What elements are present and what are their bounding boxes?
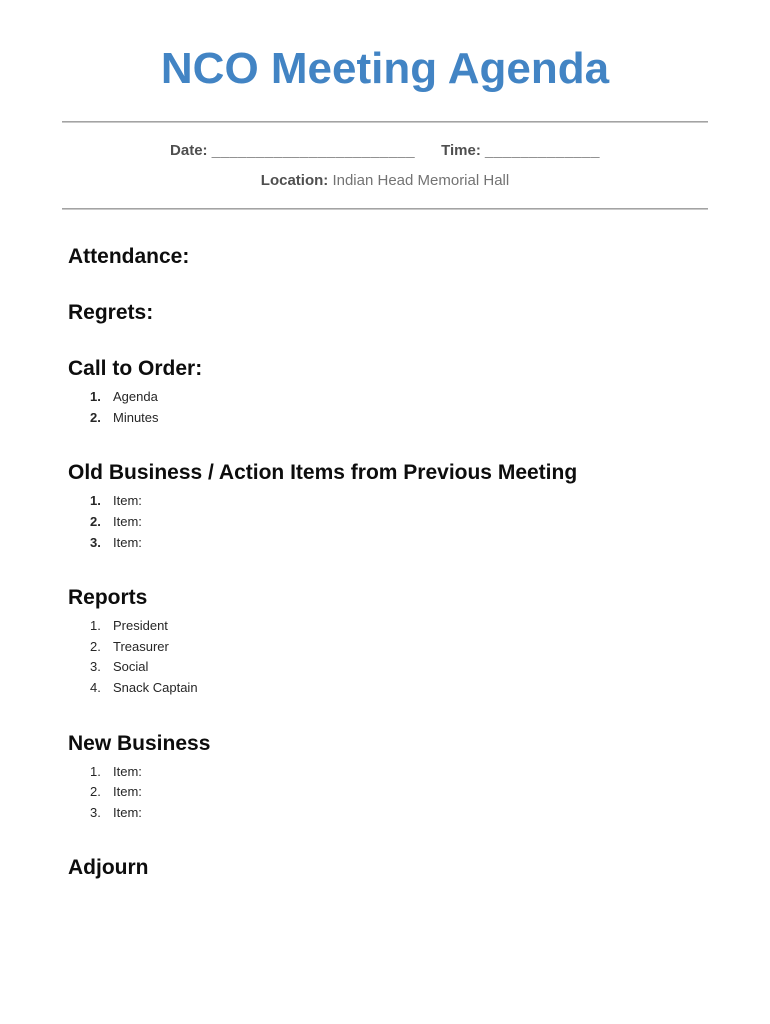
list-item-text: Item: — [113, 762, 142, 783]
section-heading: Attendance: — [68, 246, 702, 268]
section-heading: Reports — [68, 587, 702, 609]
list-item-number: 1. — [90, 387, 113, 408]
time-label: Time: — [441, 142, 481, 159]
list-item-text: President — [113, 616, 168, 637]
section-heading: New Business — [68, 733, 702, 755]
location-row: Location: Indian Head Memorial Hall — [0, 166, 770, 196]
time-field: Time: _____________ — [441, 136, 600, 166]
date-label: Date: — [170, 142, 208, 159]
document-title: NCO Meeting Agenda — [0, 44, 770, 93]
list-item-text: Agenda — [113, 387, 158, 408]
section-heading: Call to Order: — [68, 358, 702, 380]
list-item-text: Social — [113, 657, 148, 678]
list-item: 2.Item: — [90, 512, 702, 533]
list-item-text: Item: — [113, 512, 142, 533]
meeting-meta: Date: _______________________ Time: ____… — [0, 123, 770, 208]
list-item-text: Minutes — [113, 408, 159, 429]
list-item-text: Snack Captain — [113, 678, 198, 699]
document-page: NCO Meeting Agenda Date: _______________… — [0, 44, 770, 1024]
list-item: 2.Item: — [90, 782, 702, 803]
section-list: 1.Item:2.Item:3.Item: — [68, 491, 702, 553]
agenda-section: Old Business / Action Items from Previou… — [68, 462, 702, 553]
location-label: Location: — [261, 172, 329, 189]
list-item: 3.Item: — [90, 533, 702, 554]
list-item-number: 4. — [90, 678, 113, 699]
section-heading: Old Business / Action Items from Previou… — [68, 462, 702, 484]
list-item-number: 3. — [90, 803, 113, 824]
list-item: 3.Social — [90, 657, 702, 678]
list-item-number: 1. — [90, 616, 113, 637]
list-item: 4.Snack Captain — [90, 678, 702, 699]
location-value: Indian Head Memorial Hall — [332, 172, 509, 189]
date-field: Date: _______________________ — [170, 136, 415, 166]
agenda-section: Regrets: — [68, 302, 702, 324]
list-item: 1.Item: — [90, 491, 702, 512]
list-item: 3.Item: — [90, 803, 702, 824]
sections: Attendance:Regrets:Call to Order:1.Agend… — [0, 210, 770, 879]
list-item-text: Item: — [113, 533, 142, 554]
list-item-number: 3. — [90, 533, 113, 554]
list-item-text: Item: — [113, 491, 142, 512]
list-item-number: 2. — [90, 408, 113, 429]
agenda-section: Call to Order:1.Agenda2.Minutes — [68, 358, 702, 428]
agenda-section: Adjourn — [68, 857, 702, 879]
section-list: 1.Item:2.Item:3.Item: — [68, 762, 702, 824]
list-item-text: Item: — [113, 803, 142, 824]
list-item: 2.Treasurer — [90, 637, 702, 658]
list-item-number: 2. — [90, 512, 113, 533]
date-blank: _______________________ — [212, 142, 415, 159]
list-item: 1.Agenda — [90, 387, 702, 408]
section-list: 1.President2.Treasurer3.Social4.Snack Ca… — [68, 616, 702, 698]
list-item-number: 1. — [90, 491, 113, 512]
section-heading: Adjourn — [68, 857, 702, 879]
list-item-text: Item: — [113, 782, 142, 803]
list-item-number: 2. — [90, 782, 113, 803]
list-item: 1.Item: — [90, 762, 702, 783]
time-blank: _____________ — [485, 142, 600, 159]
list-item: 2.Minutes — [90, 408, 702, 429]
agenda-section: Attendance: — [68, 246, 702, 268]
date-time-row: Date: _______________________ Time: ____… — [0, 136, 770, 166]
agenda-section: Reports1.President2.Treasurer3.Social4.S… — [68, 587, 702, 698]
list-item-number: 2. — [90, 637, 113, 658]
list-item-text: Treasurer — [113, 637, 169, 658]
section-heading: Regrets: — [68, 302, 702, 324]
agenda-section: New Business1.Item:2.Item:3.Item: — [68, 733, 702, 824]
section-list: 1.Agenda2.Minutes — [68, 387, 702, 428]
list-item-number: 3. — [90, 657, 113, 678]
list-item-number: 1. — [90, 762, 113, 783]
list-item: 1.President — [90, 616, 702, 637]
